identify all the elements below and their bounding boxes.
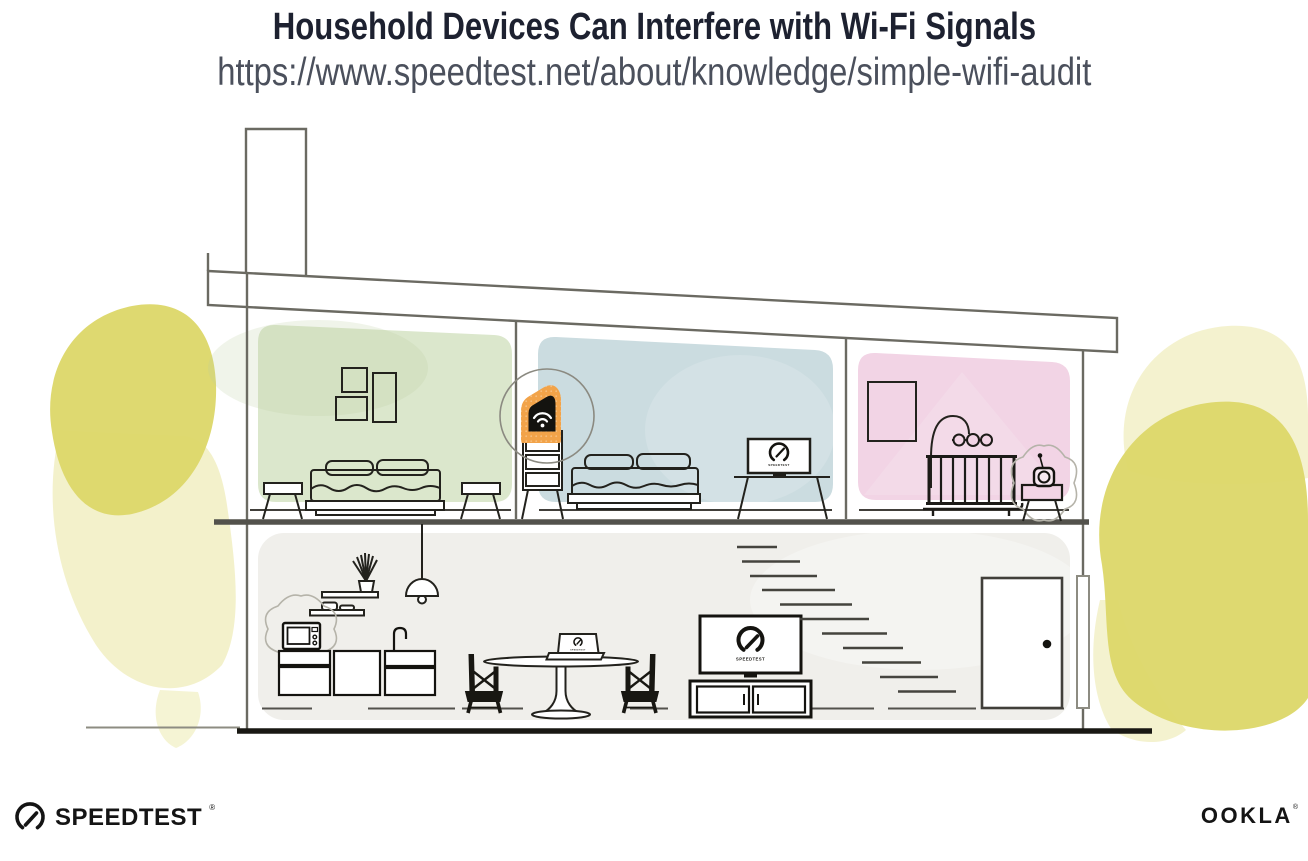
speedtest-logo: SPEEDTEST ®	[12, 800, 215, 836]
tv-console	[690, 681, 811, 717]
speedtest-gauge-icon	[12, 800, 48, 836]
foliage-blob	[1099, 402, 1308, 731]
drainpipe	[1077, 576, 1089, 708]
chimney	[246, 129, 306, 277]
front-door	[982, 578, 1062, 708]
trademark-symbol: ®	[209, 803, 215, 812]
speedtest-wordmark: SPEEDTEST	[55, 804, 202, 832]
living-room-tv: SPEEDTEST	[690, 616, 811, 717]
plant-pot	[359, 581, 374, 592]
dresser	[522, 431, 563, 519]
foliage-blob	[156, 690, 201, 748]
microwave-icon	[283, 623, 320, 649]
foliage-left	[50, 304, 236, 748]
wall-shading	[645, 355, 835, 505]
doorknob	[1043, 640, 1052, 649]
living-tv-label: SPEEDTEST	[736, 657, 765, 662]
ookla-logo: OOKLA ®	[1201, 803, 1298, 829]
ookla-wordmark: OOKLA	[1201, 803, 1293, 829]
infographic-page: Household Devices Can Interfere with Wi-…	[0, 0, 1308, 861]
trademark-symbol: ®	[1293, 804, 1298, 811]
laptop-label: SPEEDTEST	[570, 650, 586, 652]
house-cutaway-illustration: SPEEDTEST	[0, 0, 1308, 861]
bedroom-tv-label: SPEEDTEST	[768, 463, 789, 467]
foliage-right	[1093, 326, 1308, 742]
kitchen-cabinets	[279, 651, 435, 695]
